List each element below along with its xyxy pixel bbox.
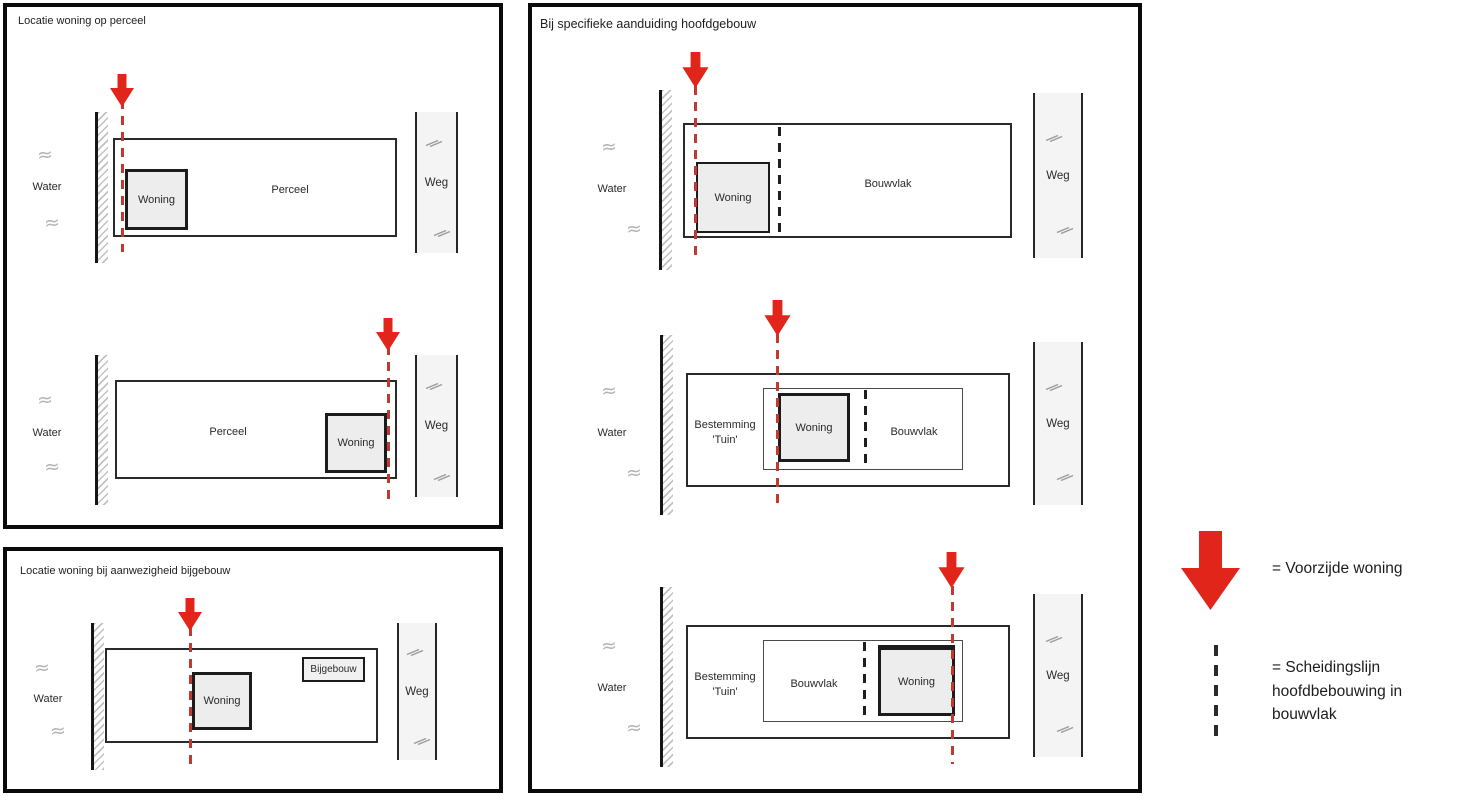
weg-strip: Weg (1033, 93, 1083, 258)
water-hatching (94, 623, 104, 770)
legend-scheidingslijn-line2: hoofdbebouwing in (1272, 680, 1402, 704)
woning-label: Woning (714, 192, 751, 204)
weg-label: Weg (1046, 670, 1069, 682)
water-hatching (663, 587, 673, 767)
voorzijde-dashed-line (694, 86, 697, 260)
wave-icon: ≈ (43, 211, 61, 234)
wave-icon: ≈ (43, 455, 61, 478)
wave-icon: ≈ (49, 719, 67, 742)
panel-locatie-bijgebouw: Locatie woning bij aanwezigheid bijgebou… (3, 547, 503, 793)
legend-scheidingslijn-line1: = Scheidingslijn (1272, 656, 1402, 680)
voorzijde-dashed-line (387, 346, 390, 501)
woning-box: Woning (192, 672, 252, 730)
road-mark-icon (425, 138, 443, 149)
road-mark-icon (1045, 382, 1063, 393)
weg-label: Weg (1046, 418, 1069, 430)
water-label: Water (34, 693, 63, 705)
weg-strip: Weg (1033, 594, 1083, 757)
perceel-label: Perceel (271, 184, 308, 196)
voorzijde-dashed-line (189, 627, 192, 770)
front-arrow-icon (682, 52, 709, 88)
water-hatching (98, 355, 108, 505)
voorzijde-dashed-line (951, 586, 954, 764)
weg-label: Weg (1046, 170, 1069, 182)
water-label: Water (33, 427, 62, 439)
bijgebouw-box: Bijgebouw (302, 657, 365, 682)
water-hatching (663, 335, 673, 515)
water-label: Water (598, 183, 627, 195)
legend-voorzijde-label: = Voorzijde woning (1272, 560, 1403, 578)
road-mark-icon (1045, 634, 1063, 645)
panel-specifieke-aanduiding: Bij specifieke aanduiding hoofdgebouw ≈ … (528, 3, 1142, 793)
wave-icon: ≈ (600, 379, 618, 402)
water-label: Water (598, 427, 627, 439)
wave-icon: ≈ (625, 461, 643, 484)
panel-title: Locatie woning op perceel (18, 15, 146, 27)
road-mark-icon (425, 381, 443, 392)
water-label: Water (598, 682, 627, 694)
scheidingslijn-dashed-line (863, 642, 866, 722)
water-boundary-line (659, 90, 662, 270)
road-mark-icon (1056, 225, 1074, 236)
water-boundary-line (91, 623, 94, 770)
front-arrow-icon (376, 318, 400, 351)
weg-label: Weg (425, 177, 448, 189)
bestemming-tuin-label: Bestemming 'Tuin' (694, 418, 755, 448)
water-boundary-line (660, 587, 663, 767)
bouwvlak-label: Bouwvlak (890, 426, 937, 438)
legend-scheidingslijn-line3: bouwvlak (1272, 703, 1402, 727)
road-mark-icon (1056, 724, 1074, 735)
legend-scheidingslijn-label: = Scheidingslijn hoofdbebouwing in bouwv… (1272, 656, 1402, 727)
scheidingslijn-dashed-line (864, 390, 867, 468)
scheidingslijn-dashed-line (778, 127, 781, 235)
weg-label: Weg (405, 686, 428, 698)
woning-box: Woning (878, 645, 955, 716)
front-arrow-icon (938, 552, 965, 588)
wave-icon: ≈ (600, 634, 618, 657)
road-mark-icon (433, 472, 451, 483)
water-hatching (662, 90, 672, 270)
front-arrow-icon (110, 74, 134, 107)
panel-locatie-perceel: Locatie woning op perceel ≈ ≈ Water Perc… (3, 3, 503, 529)
voorzijde-dashed-line (776, 334, 779, 510)
woning-label: Woning (203, 695, 240, 707)
woning-label: Woning (795, 422, 832, 434)
wave-icon: ≈ (33, 656, 51, 679)
woning-label: Woning (898, 676, 935, 688)
woning-label: Woning (138, 194, 175, 206)
woning-box: Woning (696, 162, 770, 233)
tuin-label: 'Tuin' (694, 433, 755, 448)
road-mark-icon (1045, 133, 1063, 144)
woning-box: Woning (778, 393, 850, 462)
wave-icon: ≈ (36, 143, 54, 166)
weg-strip: Weg (397, 623, 437, 760)
road-mark-icon (413, 736, 431, 747)
woning-box: Woning (325, 413, 387, 473)
front-arrow-icon (178, 598, 202, 631)
wave-icon: ≈ (625, 217, 643, 240)
bouwvlak-label: Bouwvlak (864, 178, 911, 190)
bestemming-tuin-label: Bestemming 'Tuin' (694, 670, 755, 700)
tuin-label: 'Tuin' (694, 685, 755, 700)
perceel-label: Perceel (209, 426, 246, 438)
figure-canvas: Locatie woning op perceel ≈ ≈ Water Perc… (0, 0, 1462, 796)
water-boundary-line (95, 355, 98, 505)
water-label: Water (33, 181, 62, 193)
water-boundary-line (95, 112, 98, 263)
water-hatching (98, 112, 108, 263)
legend-dashed-line (1214, 645, 1218, 743)
front-arrow-icon (764, 300, 791, 336)
panel-title: Bij specifieke aanduiding hoofdgebouw (540, 17, 756, 31)
road-mark-icon (406, 647, 424, 658)
bouwvlak-label: Bouwvlak (790, 678, 837, 690)
road-mark-icon (1056, 472, 1074, 483)
wave-icon: ≈ (625, 716, 643, 739)
weg-strip: Weg (1033, 342, 1083, 505)
woning-box: Woning (125, 169, 188, 230)
voorzijde-dashed-line (121, 100, 124, 252)
weg-strip: Weg (415, 112, 458, 253)
wave-icon: ≈ (600, 135, 618, 158)
wave-icon: ≈ (36, 388, 54, 411)
woning-label: Woning (337, 437, 374, 449)
water-boundary-line (660, 335, 663, 515)
weg-label: Weg (425, 420, 448, 432)
panel-title: Locatie woning bij aanwezigheid bijgebou… (20, 565, 230, 577)
weg-strip: Weg (415, 355, 458, 497)
bijgebouw-label: Bijgebouw (310, 664, 356, 675)
bestemming-label: Bestemming (694, 670, 755, 685)
bestemming-label: Bestemming (694, 418, 755, 433)
road-mark-icon (433, 228, 451, 239)
legend-arrow-icon (1181, 531, 1240, 610)
